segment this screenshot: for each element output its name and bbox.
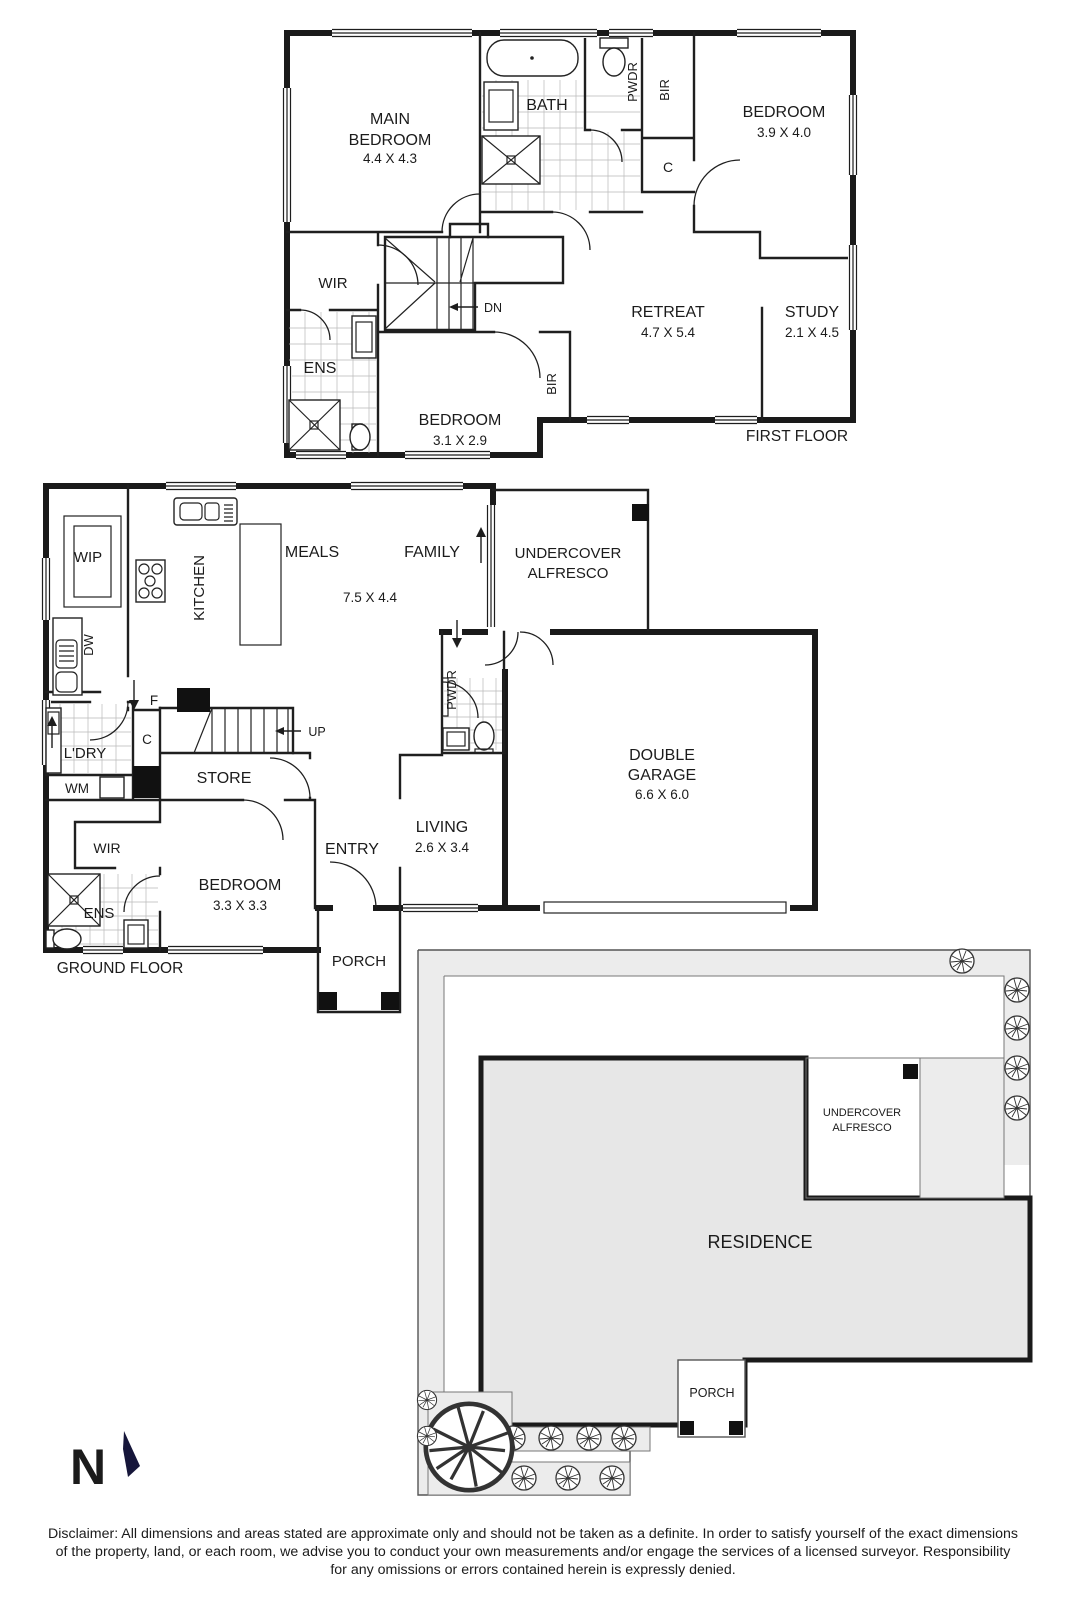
floorplan-graphic: MAINBEDROOM4.4 X 4.3BATHPWDRBIRCBEDROOM3… [0,0,1067,1600]
room-label-family: FAMILY [404,544,460,561]
room-dim-main-bedroom: 4.4 X 4.3 [363,151,417,166]
ground-floor-title: GROUND FLOOR [57,960,184,977]
room-label-bath: BATH [526,97,567,114]
room-label-bir: BIR [657,79,672,101]
ens-fixtures [289,316,376,450]
room-label-meals: MEALS [285,544,339,561]
room-label-ens: ENS [84,905,115,922]
dishwasher [53,618,82,695]
closet-fill [133,766,160,798]
room-label-garage: GARAGE [628,767,696,784]
fixture-label-washing-machine: WM [65,781,89,796]
bath-shower [482,136,540,184]
porch-post [319,992,337,1010]
site-garden-strip [920,1058,1004,1198]
room-label-alfresco: ALFRESCO [528,565,609,582]
fixture-label-fridge: F [150,693,158,708]
room-label-porch: PORCH [332,953,386,970]
north-indicator: N [70,1431,140,1495]
room-label-ens: ENS [304,360,337,377]
first-floor-fixtures [289,38,628,450]
tree-icon [1005,1056,1029,1080]
room-dim-study: 2.1 X 4.5 [785,325,839,340]
room-label-closet: C [142,732,152,747]
disclaimer: Disclaimer: All dimensions and areas sta… [48,1526,1018,1578]
fixture-label-dishwasher: DW [81,633,96,655]
room-dim-living: 2.6 X 3.4 [415,840,470,855]
room-label-store: STORE [197,770,252,787]
tree-icon [417,1426,436,1445]
site-porch-post [729,1421,743,1435]
tree-icon [1005,978,1029,1002]
site-label-residence: RESIDENCE [707,1232,812,1252]
fridge-space [177,688,210,712]
disclaimer-line: of the property, land, or each room, we … [56,1544,1012,1560]
disclaimer-line: for any omissions or errors contained he… [330,1562,735,1578]
tree-icon [1005,1096,1029,1120]
pwdr-toilet [600,38,628,76]
stairs-down-label: DN [484,301,502,315]
room-label-wir: WIR [93,840,120,856]
room-label-garage: DOUBLE [629,747,695,764]
washing-machine [100,777,124,798]
tree-icon [539,1426,563,1450]
room-label-bedroom-3: BEDROOM [419,412,502,429]
room-label-retreat: RETREAT [631,304,705,321]
tree-icon [556,1466,580,1490]
alfresco-post [632,504,649,521]
tree-icon [577,1426,601,1450]
north-letter: N [70,1439,106,1495]
room-label-study: STUDY [785,304,840,321]
room-label-main-bedroom: BEDROOM [349,132,432,149]
tree-icon [950,949,974,973]
garage-door [540,899,790,917]
room-label-closet: C [663,159,673,175]
kitchen-cooktop [136,560,165,602]
porch-post [381,992,399,1010]
room-dim-garage: 6.6 X 6.0 [635,787,689,802]
laundry-trough [46,708,61,773]
room-label-bir-2: BIR [544,373,559,395]
room-label-alfresco: UNDERCOVER [515,545,622,562]
site-border-band-top [418,950,1030,976]
room-label-pwdr: PWDR [625,62,640,102]
disclaimer-line: Disclaimer: All dimensions and areas sta… [48,1526,1018,1542]
first-floor-title: FIRST FLOOR [746,428,848,445]
room-label-kitchen: KITCHEN [191,555,208,621]
tree-icon [512,1466,536,1490]
bathtub-drain [530,56,534,60]
kitchen-sink [174,498,237,525]
room-dim-bedroom: 3.3 X 3.3 [213,898,267,913]
room-dim-bedroom-3: 3.1 X 2.9 [433,433,487,448]
tree-icon [417,1390,436,1409]
site-label-porch: PORCH [689,1386,734,1400]
stairs-first-floor [385,224,563,330]
room-label-entry: ENTRY [325,841,379,858]
room-dim-retreat: 4.7 X 5.4 [641,325,696,340]
tree-icon [1005,1016,1029,1040]
room-label-wir: WIR [318,275,347,292]
site-plan: UNDERCOVERALFRESCORESIDENCEPORCH [417,949,1030,1495]
large-tree-icon [426,1404,512,1490]
room-label-main-bedroom: MAIN [370,111,410,128]
north-arrow-icon [123,1431,140,1477]
ground-floor-plan: WIPKITCHENMEALS7.5 X 4.4FAMILYUNDERCOVER… [43,483,816,1013]
room-label-pwdr: PWDR [444,670,459,710]
room-label-living: LIVING [416,819,468,836]
site-label-alfresco: ALFRESCO [832,1122,892,1134]
stairs-up-label: UP [308,725,325,739]
floorplan-page: MAINBEDROOM4.4 X 4.3BATHPWDRBIRCBEDROOM3… [0,0,1067,1600]
room-label-wip: WIP [74,549,102,566]
tree-icon [612,1426,636,1450]
room-label-bedroom-2: BEDROOM [743,104,826,121]
site-alfresco-post [903,1064,918,1079]
tree-icon [600,1466,624,1490]
site-porch-post [680,1421,694,1435]
room-label-bedroom: BEDROOM [199,877,282,894]
room-dim-meals-family: 7.5 X 4.4 [343,590,398,605]
room-dim-bedroom-2: 3.9 X 4.0 [757,125,811,140]
first-floor-plan: MAINBEDROOM4.4 X 4.3BATHPWDRBIRCBEDROOM3… [284,30,857,459]
room-label-laundry: L'DRY [64,745,107,762]
site-label-alfresco: UNDERCOVER [823,1107,901,1119]
